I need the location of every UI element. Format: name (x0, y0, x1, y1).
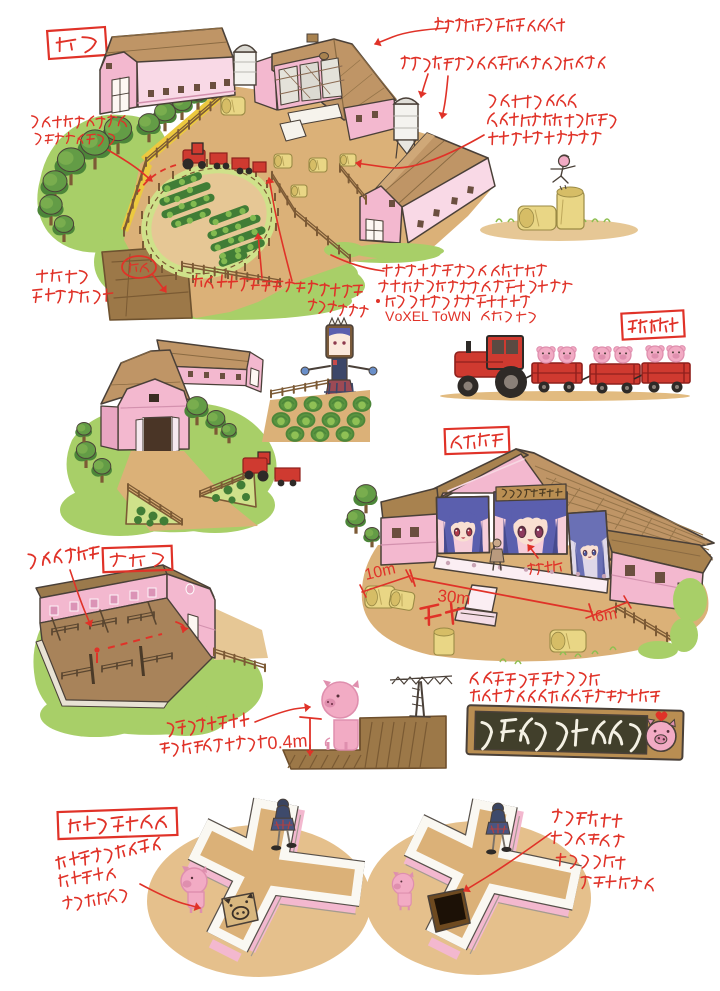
svg-text:0.4m: 0.4m (267, 730, 308, 753)
svg-text:VoXEL ToWN: VoXEL ToWN (385, 308, 471, 324)
svg-text:30m: 30m (437, 586, 472, 608)
